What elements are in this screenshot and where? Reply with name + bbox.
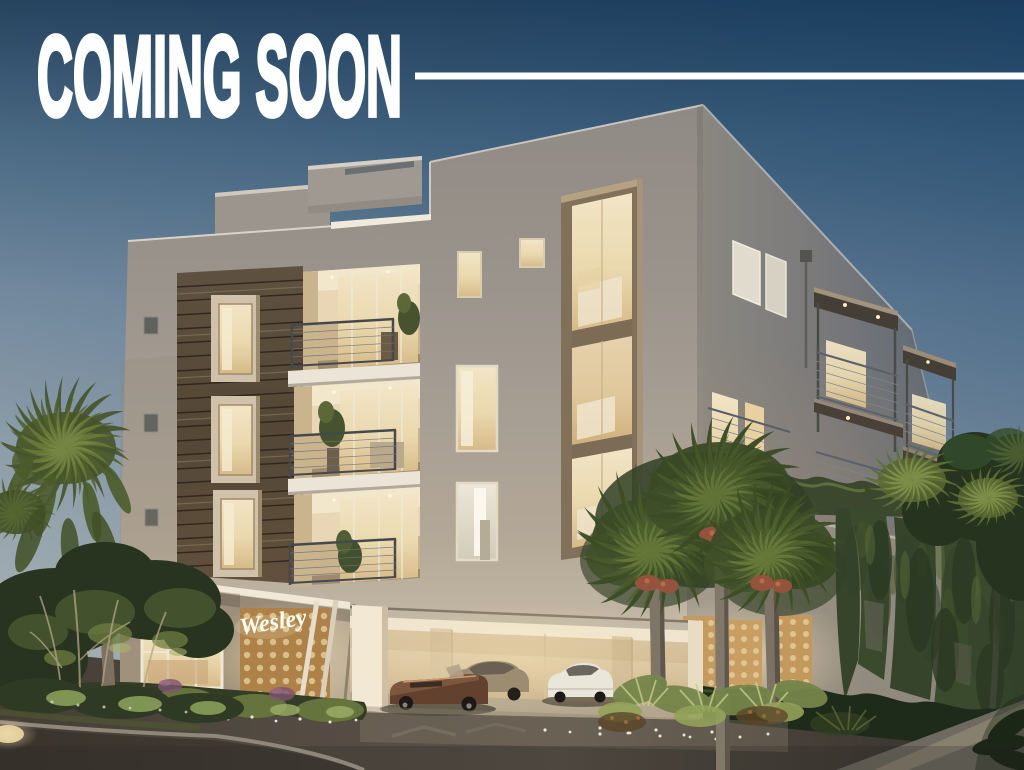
svg-text:COMING SOON: COMING SOON bbox=[37, 12, 402, 140]
